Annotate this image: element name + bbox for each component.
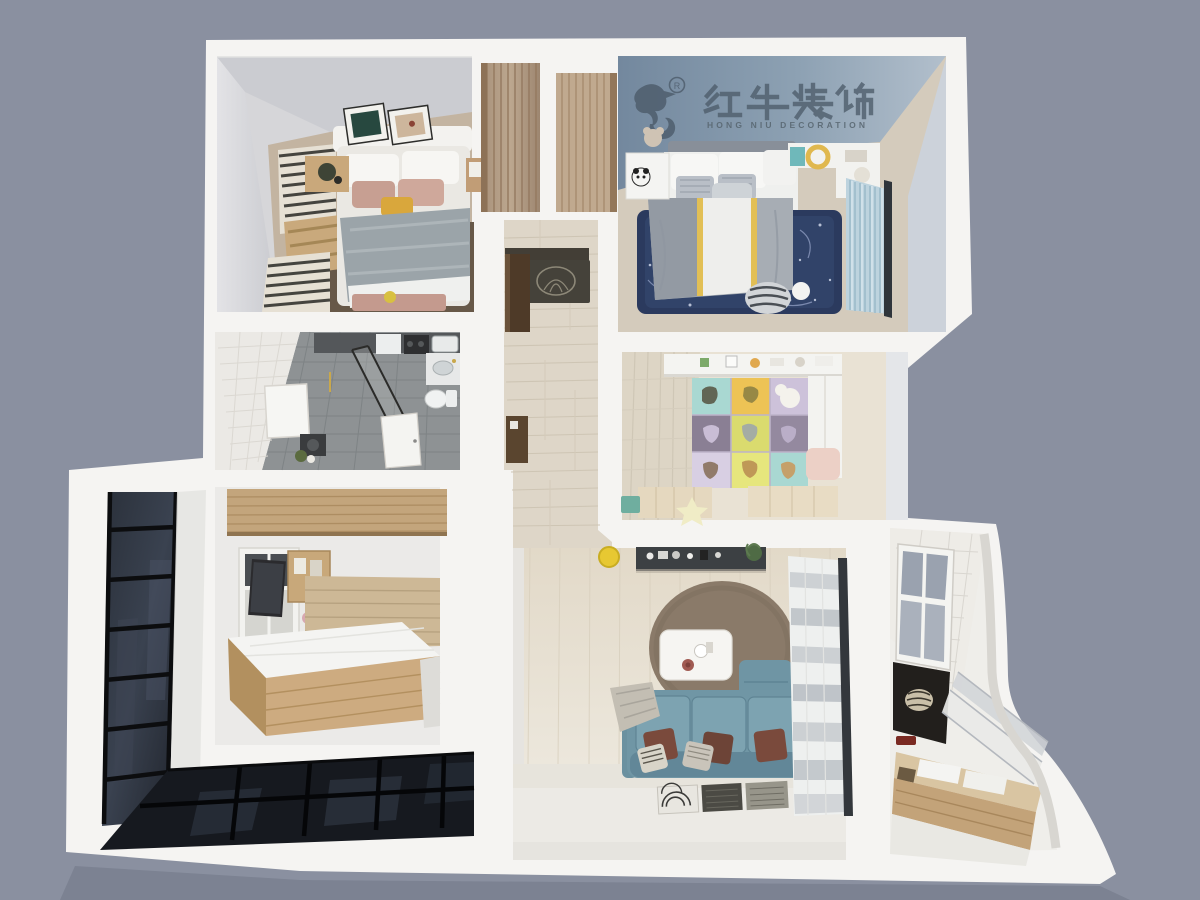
svg-text:R: R bbox=[674, 81, 681, 91]
